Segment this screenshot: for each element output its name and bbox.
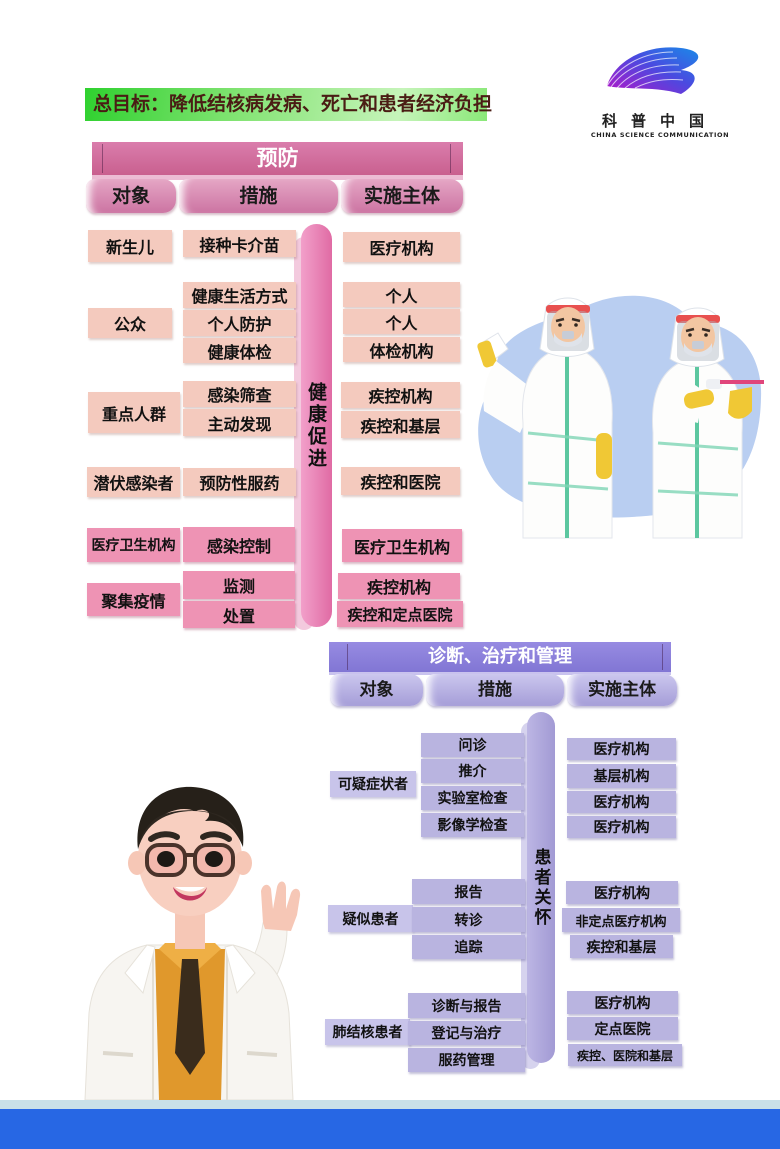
cell: 疾控、医院和基层 xyxy=(568,1044,682,1066)
cell: 预防性服药 xyxy=(183,468,296,496)
logo-cn-text: 科普中国 xyxy=(580,110,740,131)
cell: 基层机构 xyxy=(567,764,676,788)
divider xyxy=(662,644,663,670)
cell: 问诊 xyxy=(421,733,524,757)
cell: 潜伏感染者 xyxy=(87,467,180,497)
cell: 医疗机构 xyxy=(567,816,676,838)
footer-blue-bar xyxy=(0,1109,780,1149)
divider xyxy=(102,144,103,173)
cell: 个人防护 xyxy=(183,310,296,336)
diagnosis-section-title: 诊断、治疗和管理 xyxy=(329,642,671,675)
cell: 疾控和基层 xyxy=(570,935,673,958)
cell: 处置 xyxy=(183,601,295,628)
cell: 服药管理 xyxy=(408,1048,525,1072)
logo-swoosh-icon xyxy=(585,42,735,104)
cell: 疾控和医院 xyxy=(341,467,460,495)
prevention-section-title: 预防 xyxy=(92,142,463,180)
cell: 疾控机构 xyxy=(341,382,460,408)
cell: 感染筛查 xyxy=(183,381,296,407)
cell: 疾控机构 xyxy=(338,573,460,599)
diagnosis-col-measure: 措施 xyxy=(426,674,564,706)
cell: 疑似患者 xyxy=(328,905,413,932)
cell: 医疗机构 xyxy=(566,881,678,904)
cell: 推介 xyxy=(421,759,524,783)
cell: 医疗机构 xyxy=(567,791,676,813)
cell: 医疗机构 xyxy=(567,991,678,1014)
logo-en-text: CHINA SCIENCE COMMUNICATION xyxy=(580,131,740,139)
cell: 医疗机构 xyxy=(567,738,676,760)
cell: 监测 xyxy=(183,571,295,599)
china-science-communication-logo: 科普中国 CHINA SCIENCE COMMUNICATION xyxy=(580,42,740,134)
infographic-page: 总目标：降低结核病发病、死亡和患者经济负担 科普中国 CHINA SCIENCE… xyxy=(0,0,780,1149)
prevention-col-subject: 实施主体 xyxy=(341,179,463,213)
footer-light-strip xyxy=(0,1100,780,1109)
cell: 追踪 xyxy=(412,935,525,959)
cell: 医疗机构 xyxy=(343,232,460,262)
cell: 体检机构 xyxy=(343,337,460,362)
cell: 医疗卫生机构 xyxy=(342,529,462,562)
cell: 聚集疫情 xyxy=(87,583,180,616)
cell: 非定点医疗机构 xyxy=(562,908,680,932)
ppe-workers-illustration xyxy=(468,283,770,545)
cell: 个人 xyxy=(343,309,460,334)
cell: 定点医院 xyxy=(567,1017,678,1040)
cell: 感染控制 xyxy=(183,527,295,562)
cell: 疾控和定点医院 xyxy=(337,601,463,627)
cell: 诊断与报告 xyxy=(408,993,525,1018)
diagnosis-col-subject: 实施主体 xyxy=(567,674,677,706)
cell: 报告 xyxy=(412,879,525,904)
cell: 接种卡介苗 xyxy=(183,230,296,257)
doctor-illustration xyxy=(55,763,325,1100)
cell: 医疗卫生机构 xyxy=(87,528,180,562)
cell: 健康生活方式 xyxy=(183,282,296,308)
divider xyxy=(450,144,451,173)
diagnosis-col-object: 对象 xyxy=(330,674,423,706)
cell: 肺结核患者 xyxy=(325,1019,410,1045)
cell: 登记与治疗 xyxy=(408,1021,525,1045)
cell: 重点人群 xyxy=(88,392,180,433)
cell: 实验室检查 xyxy=(421,786,524,810)
cell: 个人 xyxy=(343,282,460,307)
goal-banner: 总目标：降低结核病发病、死亡和患者经济负担 xyxy=(85,88,487,121)
health-promotion-bar: 健康促进 xyxy=(301,224,332,627)
cell: 可疑症状者 xyxy=(330,771,416,797)
cell: 健康体检 xyxy=(183,338,296,363)
cell: 公众 xyxy=(88,308,172,338)
cell: 转诊 xyxy=(412,907,525,932)
cell: 疾控和基层 xyxy=(341,411,460,438)
patient-care-bar: 患者关怀 xyxy=(527,712,555,1063)
prevention-col-object: 对象 xyxy=(86,179,176,213)
cell: 影像学检查 xyxy=(421,813,524,837)
cell: 主动发现 xyxy=(183,409,296,436)
prevention-col-measure: 措施 xyxy=(179,179,338,213)
cell: 新生儿 xyxy=(88,230,172,262)
divider xyxy=(347,644,348,670)
